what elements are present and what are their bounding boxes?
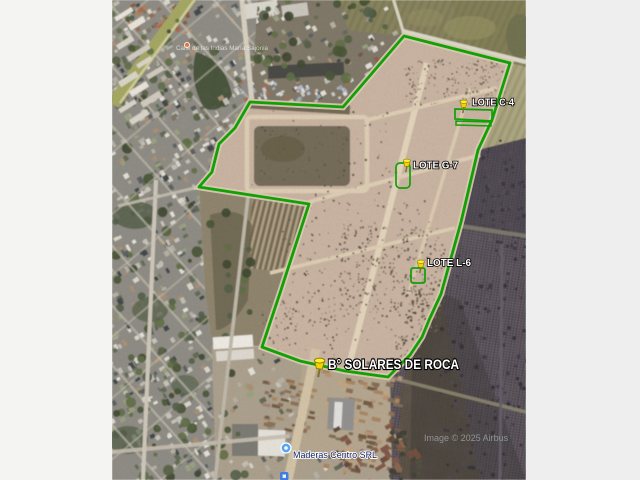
svg-text:LOTE G-7: LOTE G-7 <box>413 161 458 172</box>
svg-text:Image © 2025 Airbus: Image © 2025 Airbus <box>424 433 509 443</box>
svg-text:B° SOLARES DE ROCA: B° SOLARES DE ROCA <box>328 356 459 372</box>
svg-text:LOTE C-4: LOTE C-4 <box>472 98 514 109</box>
svg-text:LOTE L-6: LOTE L-6 <box>427 258 471 269</box>
svg-text:Calle de las Indias María Sajo: Calle de las Indias María Sajonia <box>176 45 269 52</box>
svg-text:Maderas Centro SRL: Maderas Centro SRL <box>293 450 377 461</box>
